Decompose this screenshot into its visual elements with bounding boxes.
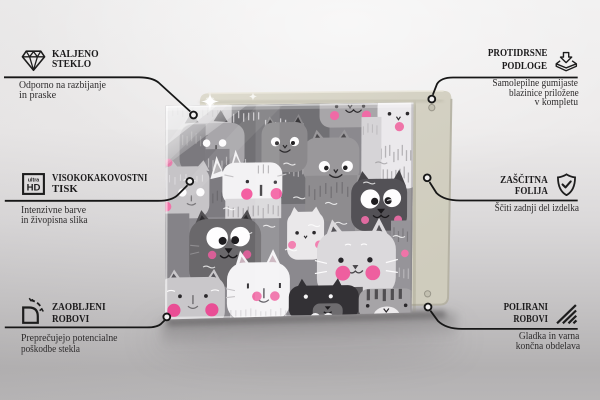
svg-text:HD: HD bbox=[27, 183, 41, 194]
